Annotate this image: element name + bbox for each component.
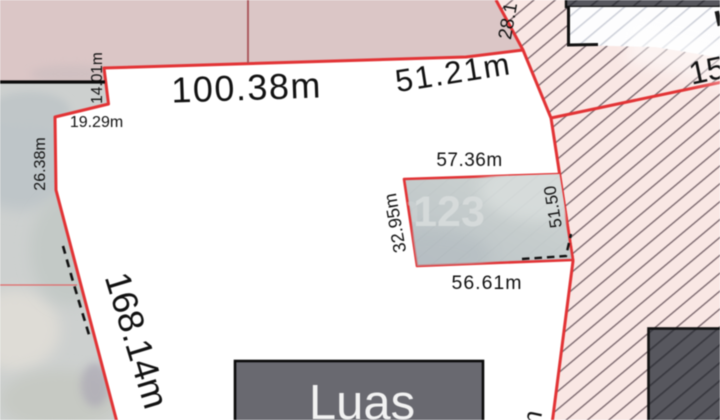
svg-text:123: 123 (413, 188, 485, 236)
svg-text:14.01m: 14.01m (89, 52, 106, 104)
svg-text:56.61m: 56.61m (451, 272, 522, 294)
svg-text:57.36m: 57.36m (436, 150, 502, 171)
svg-text:26.38m: 26.38m (32, 137, 49, 190)
svg-text:Luas: Luas (309, 376, 415, 420)
svg-text:15: 15 (686, 49, 720, 92)
svg-text:100.38m: 100.38m (171, 64, 323, 110)
svg-text:19.29m: 19.29m (70, 114, 123, 131)
